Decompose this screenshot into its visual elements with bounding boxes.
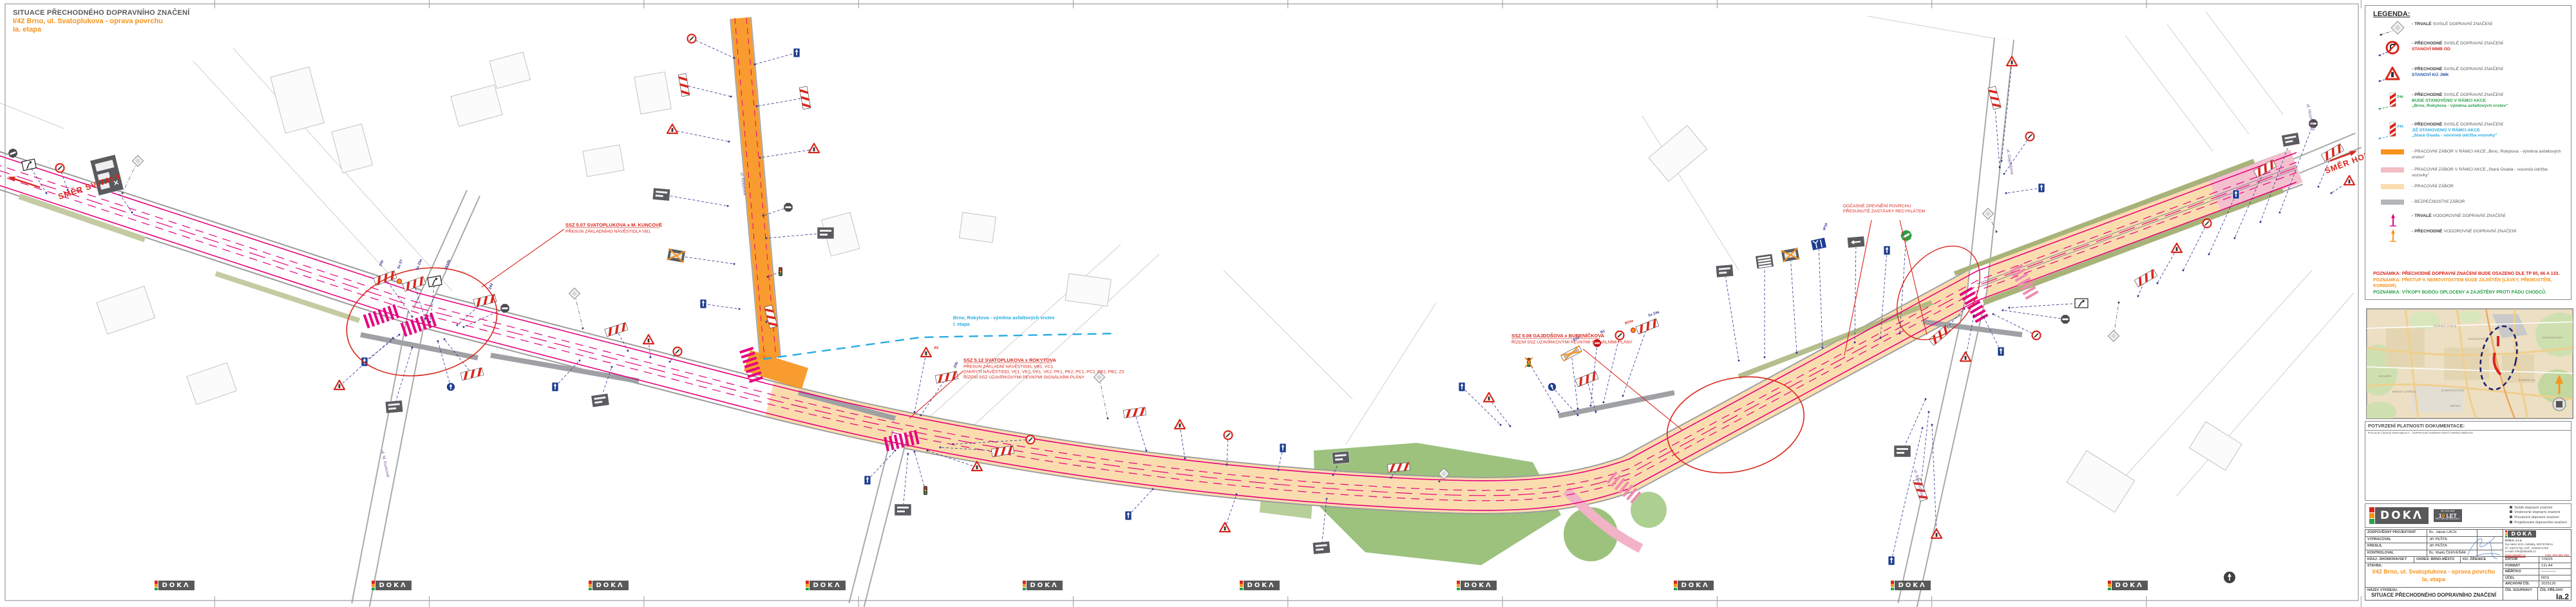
doka-footer-logo: DOKΛ [589,581,629,590]
sign-z4-icon [678,73,690,97]
sign-z4-icon [1388,463,1410,472]
svg-text:VINOHRADY: VINOHRADY [2542,336,2563,340]
legend-item-label: - PRACOVNÍ ZÁBOR V RÁMCI AKCE „Brno, Rok… [2412,148,2566,160]
note-line: POZNÁMKA: PŘECHODNÉ DOPRAVNÍ ZNAČENÍ BUD… [2373,271,2571,277]
titleblock-cell: 2025126 [2539,581,2571,587]
z4d-icon: Z4d [2374,121,2412,140]
titleblock-cell: MĚŘÍTKO [2503,568,2539,575]
sign-tri-icon [809,144,819,153]
svg-text:ZÁBRDOVICE: ZÁBRDOVICE [2441,388,2465,393]
banner-bullet: Vodorovné dopravní značení [2510,510,2567,516]
titleblock-cell: VYPRACOVAL [2365,536,2427,543]
sign-tri-icon [1484,393,1494,402]
sign-tri-icon [1175,420,1185,429]
svg-text:IP19: IP19 [1823,223,1829,231]
b24-icon [2374,40,2412,58]
site-plan-canvas: SSZ 5.07 SVATOPLUKOVA x M. KUNCOVÉ PŘESU… [0,0,2576,607]
sign-z4-icon [605,322,628,337]
doka-footer-logo: DOKΛ [1891,581,1931,590]
sign-bigblue-icon [1811,238,1827,250]
logo-square-orange [2369,513,2374,518]
sign-blue-icon [1884,246,1890,255]
titleblock-cell: KRAJ: JIHOMORAVSKÝ [2365,556,2414,563]
legend-item: - TRVALÉ VODOROVNÉ DOPRAVNÍ ZNAČENÍ [2374,212,2566,228]
svg-text:DOČASNÉ ZPEVNĚNÍ POVRCHU: DOČASNÉ ZPEVNĚNÍ POVRCHU [1843,203,1911,209]
sign-ban-icon [1027,436,1035,444]
svg-text:ul. Gajdošova: ul. Gajdošova [2005,149,2014,175]
sign-z4-icon [460,368,484,380]
sign-bluec-icon [447,383,455,391]
svg-text:Z4d: Z4d [2397,125,2403,129]
sign-board-icon [1332,451,1349,464]
a9-icon [2374,66,2412,84]
svg-text:ŘÍZENÍ SSZ UZAVÍRKOVÝMI PEVNÝM: ŘÍZENÍ SSZ UZAVÍRKOVÝMI PEVNÝMI SIGNÁLNÍ… [963,374,1084,380]
titleblock-cell: 12x A4 [2539,563,2571,569]
sign-blue-icon [1280,444,1286,453]
sign-blue-icon [361,357,368,366]
sign-ban-icon [1616,332,1624,340]
banner-bullet: Svislé dopravní značení [2510,506,2567,511]
sign-ban-icon [688,35,696,43]
sign-board-icon [2282,133,2300,147]
sign-board-icon [1312,541,1330,554]
sign-board-icon [817,227,834,239]
approval-box: POTVRZENÍ PLATNOSTI DOKUMENTACE: POLICIE… [2365,421,2571,501]
sign-sem-icon [779,267,782,276]
sign-diamond-icon [133,156,144,167]
svg-text:Z4b: Z4b [379,259,384,267]
svg-text:Sx Z4a: Sx Z4a [1648,310,1661,318]
legend-item-label: - TRVALÉ VODOROVNÉ DOPRAVNÍ ZNAČENÍ [2412,212,2505,219]
attachment-number: Ia.2 [2540,592,2569,601]
sign-ban-icon [56,164,64,173]
svg-text:SSZ 5.07 SVATOPLUKOVA x M. KUN: SSZ 5.07 SVATOPLUKOVA x M. KUNCOVÉ [565,222,662,228]
legend-item: - PRACOVNÍ ZÁBOR [2374,183,2566,198]
titleblock-cell: KONTROLOVAL [2365,550,2427,557]
svg-text:ul. Hrozňatova: ul. Hrozňatova [2306,104,2316,131]
banner-bullet: Projektování dopravního značení [2510,521,2567,526]
company-info: DOKA, s.r.o.Na návsi 11/5, Holásky, 620 … [2505,539,2569,557]
titleblock-cell: ARCHIVNÍ ČÍS. [2503,581,2539,587]
titleblock-cell: ZODPOVĚDNÝ PROJEKTANT [2365,529,2427,536]
svg-text:ZAKRYTÍ NÁVĚSTIDEL VE1, VE2, V: ZAKRYTÍ NÁVĚSTIDEL VE1, VE2, VK1, VK2, P… [963,369,1124,375]
sign-blue-icon [1125,511,1132,520]
titleblock-cell: ÚČEL [2503,575,2539,581]
sign-blue-icon [1998,347,2004,356]
legend-item-label: - PŘECHODNÉ SVISLÉ DOPRAVNÍ ZNAČENÍJIŽ S… [2412,121,2503,139]
vline-icon [2374,228,2412,243]
swatch-icon [2374,183,2412,191]
titleblock-cell: ČÍS. SOUPRAVY [2503,587,2537,601]
svg-text:SSZ 5.08 GAJDOŠOVA x BUBENÍČKO: SSZ 5.08 GAJDOŠOVA x BUBENÍČKOVA [1511,333,1605,339]
sign-blue-icon [864,476,871,485]
doka-footer-logo: DOKΛ [1457,581,1497,590]
sign-xsem-icon [1525,357,1533,368]
doka-footer-logo: DOKΛ [1023,581,1063,590]
sign-stopgr-icon [1899,229,1914,243]
sign-diamond-icon [2108,331,2119,342]
sign-diamond-icon [569,288,580,299]
legend-item-label: - PŘECHODNÉ SVISLÉ DOPRAVNÍ ZNAČENÍBUDE … [2412,91,2508,109]
titleblock-cell: RDS [2539,575,2571,581]
drawing-name: SITUACE PŘECHODNÉHO DOPRAVNÍHO ZNAČENÍ [2367,592,2500,598]
sign-z4-icon [1636,319,1659,334]
legend-item-label: - BEZPEČNOSTNÍ ZÁBOR [2412,198,2465,205]
doka-footer-logo: DOKΛ [1240,581,1280,590]
svg-text:PŘESUN ZÁKLADNÍHO NÁVĚSTIDLA V: PŘESUN ZÁKLADNÍHO NÁVĚSTIDLA VB1 [565,229,650,234]
sign-tri-icon [921,348,931,357]
logo-square-red [2369,507,2374,512]
svg-text:BRNO: BRNO [2450,404,2461,408]
titleblock-cell: OKRES: BRNO-MĚSTO [2414,556,2460,563]
svg-text:HUSOVICE: HUSOVICE [2468,337,2487,341]
doka-footer-logo: DOKΛ [372,581,412,590]
svg-text:B24a: B24a [1625,319,1634,325]
svg-text:ŘÍZENÍ SSZ UZAVÍRKOVÝMI PEVNÝM: ŘÍZENÍ SSZ UZAVÍRKOVÝMI PEVNÝMI SIGNÁLNÍ… [1511,339,1633,345]
sign-blue-icon [2038,183,2045,192]
svg-text:PŘESUNUTÉ ZASTÁVKY RECYKLÁTEM: PŘESUNUTÉ ZASTÁVKY RECYKLÁTEM [1843,208,1925,214]
legend-heading: LEGENDA: [2373,10,2571,18]
legend-notes: POZNÁMKA: PŘECHODNÉ DOPRAVNÍ ZNAČENÍ BUD… [2373,271,2571,295]
sign-dot-icon [1631,328,1636,333]
svg-text:Brno, Rokytova - výměna asfalt: Brno, Rokytova - výměna asfaltových vrst… [953,315,1055,321]
logo-square-green [2369,519,2374,524]
legend-item: - BEZPEČNOSTNÍ ZÁBOR [2374,198,2566,212]
sign-board-icon [1716,265,1733,277]
sign-dot-icon [397,279,402,284]
project-name: I/42 Brno, ul. Svatoplukova - oprava pov… [13,17,189,26]
legend-item: - PŘECHODNÉ SVISLÉ DOPRAVNÍ ZNAČENÍSTANO… [2374,40,2566,66]
swatch-icon [2374,198,2412,206]
svg-text:I. etapa: I. etapa [953,321,971,327]
banner-badge: AŽ VÍCE NEŽ 10 LET PRO VÁS NA ZNAČKÁCH [2434,509,2462,521]
legend-item-label: - PŘECHODNÉ VODOROVNÉ DOPRAVNÍ ZNAČENÍ [2412,228,2516,235]
sign-aboard-icon [1847,236,1864,248]
signature-scribble [2461,529,2506,561]
overview-map: ČERNÁ POLEHUSOVICEVINOHRADYŽIDENICEZÁBRD… [2366,308,2573,419]
svg-text:B1: B1 [1600,330,1606,335]
legend-item-label: - PŘECHODNÉ SVISLÉ DOPRAVNÍ ZNAČENÍSTANO… [2412,66,2503,78]
sign-ban-icon [2203,219,2211,228]
doka-footer-logo: DOKΛ [155,581,194,590]
approval-title: POTVRZENÍ PLATNOSTI DOKUMENTACE: [2365,422,2571,431]
north-arrow-icon [2224,572,2235,583]
sign-z4-icon [935,371,958,384]
badge-line3: PRO VÁS NA ZNAČKÁCH [2436,518,2460,520]
legend-item: - TRVALÉ SVISLÉ DOPRAVNÍ ZNAČENÍ [2374,21,2566,40]
titleblock-cell: KRESLIL [2365,543,2427,550]
titleblock-cell: DATUM [2503,556,2539,563]
svg-text:A9: A9 [934,346,938,350]
sign-blue-icon [700,299,706,308]
svg-text:Z4d: Z4d [488,283,494,290]
sign-ban-icon [1224,431,1233,440]
approval-subtitle: POLICIE ČESKÉ REPUBLIKY - DOPRAVNÍ INSPE… [2365,431,2571,436]
sign-ban-icon [674,348,682,356]
legend-item-label: - TRVALÉ SVISLÉ DOPRAVNÍ ZNAČENÍ [2412,21,2492,28]
z4d-icon: Z4d [2374,91,2412,111]
banner-bullets: Svislé dopravní značeníVodorovné dopravn… [2510,506,2567,525]
titleblock-cell: 7/2025 [2539,556,2571,563]
sign-ban-icon [2026,133,2034,141]
stavba-value: I/42 Brno, ul. Svatoplukova - oprava pov… [2367,568,2500,583]
logo-word: DOKΛ [2375,507,2429,524]
sheet-header: SITUACE PŘECHODNÉHO DOPRAVNÍHO ZNAČENÍ I… [13,9,189,34]
sign-ip-icon [2075,299,2088,308]
sign-blue-icon [2233,190,2239,199]
sign-sboard-icon [1756,254,1774,268]
sign-blue-icon [552,382,558,391]
sign-tri-icon [643,335,654,344]
legend-panel: LEGENDA: - TRVALÉ SVISLÉ DOPRAVNÍ ZNAČEN… [2365,5,2571,300]
legend-items: - TRVALÉ SVISLÉ DOPRAVNÍ ZNAČENÍ- PŘECHO… [2365,21,2571,245]
sign-z4-icon [1123,407,1146,418]
sheet-title: SITUACE PŘECHODNÉHO DOPRAVNÍHO ZNAČENÍ [13,9,189,17]
svg-text:SSZ 5.12 SVATOPLUKOVA x ROKYTO: SSZ 5.12 SVATOPLUKOVA x ROKYTOVA [963,357,1057,363]
sign-ban-icon [2032,332,2041,340]
swatch-icon [2374,166,2412,174]
project-stage: Ia. etapa [13,26,189,34]
sign-blue-icon [1459,382,1465,391]
legend-item: - PŘECHODNÉ SVISLÉ DOPRAVNÍ ZNAČENÍSTANO… [2374,66,2566,91]
legend-item-label: - PRACOVNÍ ZÁBOR [2412,183,2454,190]
doka-footer-logo: DOKΛ [806,581,846,590]
sign-z4-icon [1575,371,1598,387]
svg-text:ČERNÁ POLE: ČERNÁ POLE [2434,324,2457,328]
sign-stop-icon [784,203,793,212]
sign-xboard-icon [1781,248,1800,262]
overview-map-canvas: ČERNÁ POLEHUSOVICEVINOHRADYŽIDENICEZÁBRD… [2367,309,2573,418]
legend-item-label: - PŘECHODNÉ SVISLÉ DOPRAVNÍ ZNAČENÍSTANO… [2412,40,2503,52]
svg-text:Z4d: Z4d [2397,95,2403,99]
titleblock-cell: FORMÁT [2503,563,2539,569]
swatch-icon [2374,148,2412,156]
legend-item: - PŘECHODNÉ VODOROVNÉ DOPRAVNÍ ZNAČENÍ [2374,228,2566,245]
note-line: POZNÁMKA: VÝKOPY BUDOU OPLOCENY A ZAJIŠT… [2373,290,2571,296]
sign-stop-icon [500,304,509,313]
company-banner: DOKΛ AŽ VÍCE NEŽ 10 LET PRO VÁS NA ZNAČK… [2365,503,2571,528]
sign-ip-icon [428,275,442,286]
sign-xtable-icon [1561,346,1582,361]
sign-stop-icon [2061,315,2070,324]
legend-item: - PRACOVNÍ ZÁBOR V RÁMCI AKCE „Stará Osa… [2374,166,2566,183]
sign-tri-icon [2172,243,2182,252]
diamond-icon [2374,21,2412,37]
sign-tri-icon [334,380,345,389]
sign-board-icon [385,400,402,413]
sign-tri-icon [1220,523,1230,532]
legend-item: Z4d- PŘECHODNÉ SVISLÉ DOPRAVNÍ ZNAČENÍJI… [2374,121,2566,148]
legend-item: - PRACOVNÍ ZÁBOR V RÁMCI AKCE „Brno, Rok… [2374,148,2566,166]
sign-z4-icon [2134,269,2157,286]
sign-board-icon [591,393,609,407]
drawing-sheet: SSZ 5.07 SVATOPLUKOVA x M. KUNCOVÉ PŘESU… [0,0,2576,607]
svg-text:PŘESUN ZÁKLADNÍ NÁVĚSTIDEL VB1: PŘESUN ZÁKLADNÍ NÁVĚSTIDEL VB1, VC1 [963,364,1053,369]
titleblock-cell: ———— [2539,568,2571,575]
svg-text:Sx S7: Sx S7 [397,259,404,270]
legend-item-label: - PRACOVNÍ ZÁBOR V RÁMCI AKCE „Stará Osa… [2412,166,2566,178]
sign-tri-icon [667,124,677,133]
vline-icon [2374,212,2412,228]
doka-footer-logo: DOKΛ [2108,581,2148,590]
sign-board-icon [652,188,670,201]
legend-item: Z4d- PŘECHODNÉ SVISLÉ DOPRAVNÍ ZNAČENÍBU… [2374,91,2566,121]
sign-board-icon [895,504,911,516]
sign-board-icon [1894,445,1911,457]
sign-blue-icon [793,48,800,57]
sign-sem-icon [923,486,927,495]
banner-bullet: Provizorní dopravní značení [2510,516,2567,521]
doka-logo-small: DOKΛ [2505,530,2536,537]
sign-blue-icon [1888,556,1895,565]
sign-xboard-icon [667,248,686,263]
sign-tri-icon [2344,176,2354,185]
doka-logo: DOKΛ [2369,507,2429,524]
svg-text:Z4b: Z4b [953,361,959,369]
sign-z4-icon [799,86,811,109]
note-line: POZNÁMKA: PŘÍSTUP K NEMOVITOSTEM BUDE ZA… [2373,277,2571,290]
doka-footer-logo: DOKΛ [1674,581,1714,590]
